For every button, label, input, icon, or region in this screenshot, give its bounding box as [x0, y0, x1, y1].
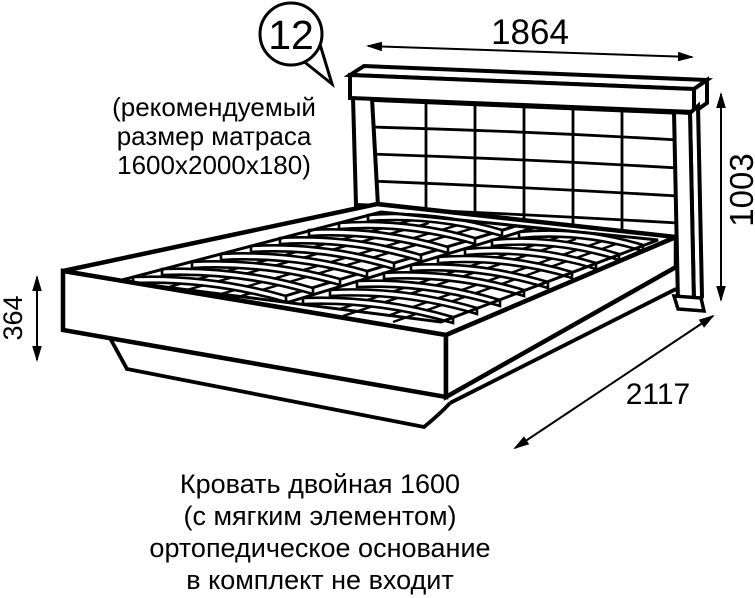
dimension-frame-height-label: 364 [0, 295, 28, 340]
dimension-height-label: 1003 [723, 153, 755, 226]
product-caption: Кровать двойная 1600 (с мягким элементом… [45, 468, 595, 596]
dimension-headboard-height: 1003 [721, 94, 755, 300]
dimension-length-label: 2117 [626, 378, 691, 411]
mattress-note: (рекомендуемый размер матраса 1600х2000х… [34, 93, 394, 180]
product-caption-line: в комплект не входит [45, 564, 595, 596]
product-caption-line: Кровать двойная 1600 [45, 468, 595, 500]
product-caption-line: (с мягким элементом) [45, 500, 595, 532]
mattress-note-line: размер матраса [34, 122, 394, 151]
mattress-note-line: 1600х2000х180) [34, 151, 394, 180]
dimension-frame-height: 364 [0, 277, 37, 360]
leg-foot-block [674, 296, 704, 311]
item-number-callout: 12 [260, 3, 332, 84]
headboard-right-leg [674, 106, 704, 311]
mattress-note-line: (рекомендуемый [34, 93, 394, 122]
item-number: 12 [268, 12, 314, 58]
dimension-headboard-width: 1864 [368, 13, 692, 57]
dimension-width-label: 1864 [491, 13, 569, 52]
product-caption-line: ортопедическое основание [45, 532, 595, 564]
furniture-diagram-page: 1864 1003 364 2117 12 (рекомендуемый раз… [0, 0, 755, 598]
